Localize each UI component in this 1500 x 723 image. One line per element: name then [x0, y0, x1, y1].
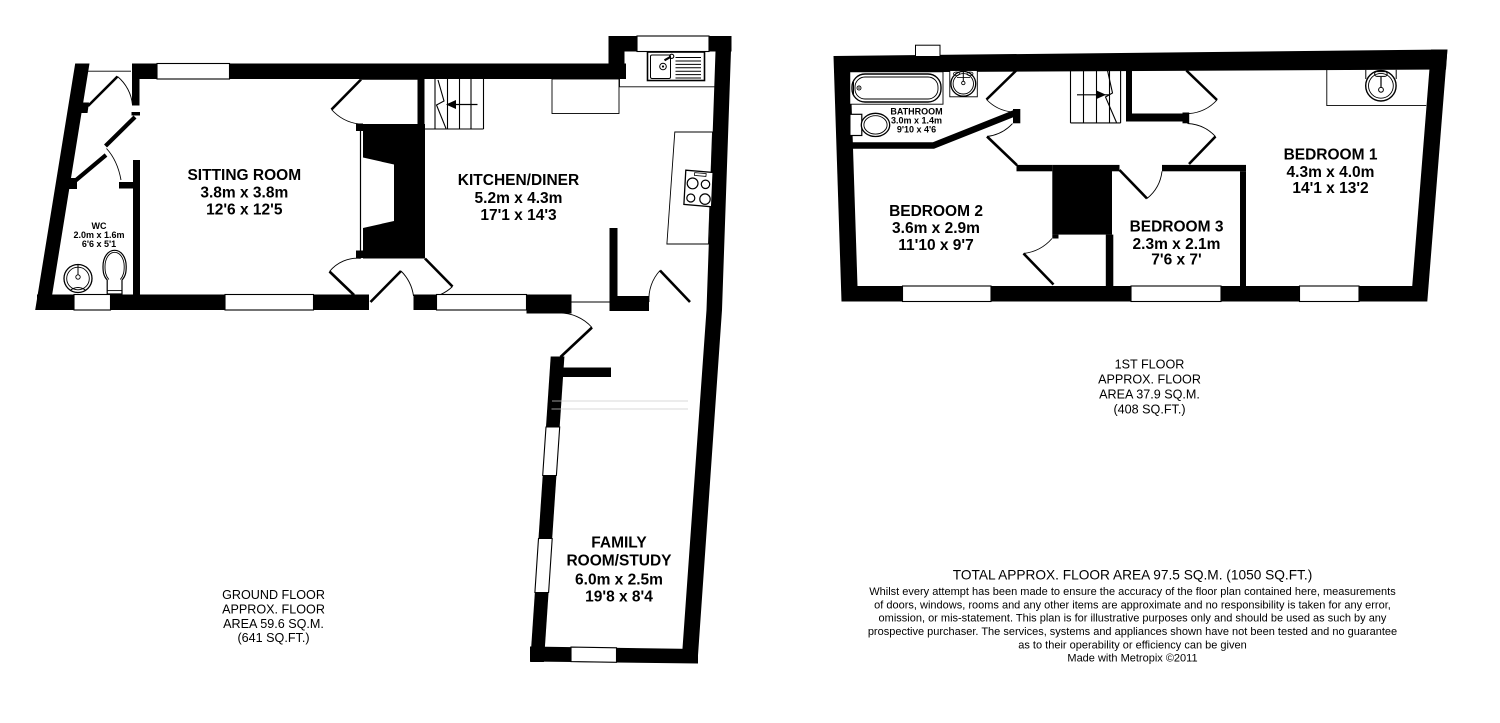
svg-text:14'1 x 13'2: 14'1 x 13'2 [1292, 180, 1368, 197]
svg-text:TOTAL APPROX. FLOOR AREA 97.5: TOTAL APPROX. FLOOR AREA 97.5 SQ.M. (105… [953, 568, 1313, 583]
svg-text:as to their operability or eff: as to their operability or efficiency ca… [1018, 639, 1246, 651]
svg-text:BEDROOM 1: BEDROOM 1 [1284, 147, 1378, 164]
svg-text:Made with Metropix ©2011: Made with Metropix ©2011 [1067, 652, 1197, 664]
svg-text:6.0m x 2.5m: 6.0m x 2.5m [575, 571, 663, 588]
svg-text:prospective purchaser. The ser: prospective purchaser. The services, sys… [868, 626, 1397, 638]
svg-text:Whilst every attempt has been: Whilst every attempt has been made to en… [869, 586, 1396, 598]
svg-text:BEDROOM 2: BEDROOM 2 [889, 203, 983, 220]
svg-text:6'6 x 5'1: 6'6 x 5'1 [82, 239, 116, 249]
svg-text:17'1 x 14'3: 17'1 x 14'3 [480, 207, 557, 224]
svg-text:BEDROOM 3: BEDROOM 3 [1130, 218, 1224, 235]
svg-text:ROOM/STUDY: ROOM/STUDY [566, 553, 672, 570]
svg-text:3.8m x 3.8m: 3.8m x 3.8m [200, 184, 288, 201]
svg-text:4.3m x 4.0m: 4.3m x 4.0m [1287, 164, 1375, 181]
svg-text:APPROX. FLOOR: APPROX. FLOOR [222, 602, 325, 616]
svg-text:12'6 x 12'5: 12'6 x 12'5 [206, 201, 283, 218]
svg-text:FAMILY: FAMILY [591, 534, 647, 551]
svg-text:(408 SQ.FT.): (408 SQ.FT.) [1113, 403, 1185, 417]
svg-text:2.3m x 2.1m: 2.3m x 2.1m [1133, 236, 1221, 253]
svg-text:APPROX. FLOOR: APPROX. FLOOR [1098, 373, 1201, 387]
svg-text:AREA 37.9 SQ.M.: AREA 37.9 SQ.M. [1099, 388, 1200, 402]
svg-text:of doors, windows, rooms and a: of doors, windows, rooms and any other i… [874, 599, 1391, 611]
svg-text:11'10 x 9'7: 11'10 x 9'7 [898, 237, 973, 254]
svg-text:GROUND FLOOR: GROUND FLOOR [222, 588, 325, 602]
svg-text:AREA 59.6 SQ.M.: AREA 59.6 SQ.M. [223, 617, 324, 631]
svg-text:3.6m x 2.9m: 3.6m x 2.9m [892, 220, 980, 237]
svg-text:7'6 x 7': 7'6 x 7' [1151, 252, 1201, 269]
svg-text:19'8 x 8'4: 19'8 x 8'4 [585, 588, 653, 605]
svg-text:KITCHEN/DINER: KITCHEN/DINER [458, 172, 579, 189]
svg-text:9'10 x 4'6: 9'10 x 4'6 [897, 124, 936, 134]
svg-text:omission, or mis-statement. Th: omission, or mis-statement. This plan is… [879, 613, 1387, 625]
svg-text:5.2m x 4.3m: 5.2m x 4.3m [475, 190, 563, 207]
svg-text:(641 SQ.FT.): (641 SQ.FT.) [237, 631, 309, 645]
svg-text:SITTING ROOM: SITTING ROOM [187, 167, 301, 184]
svg-text:1ST FLOOR: 1ST FLOOR [1115, 358, 1185, 372]
